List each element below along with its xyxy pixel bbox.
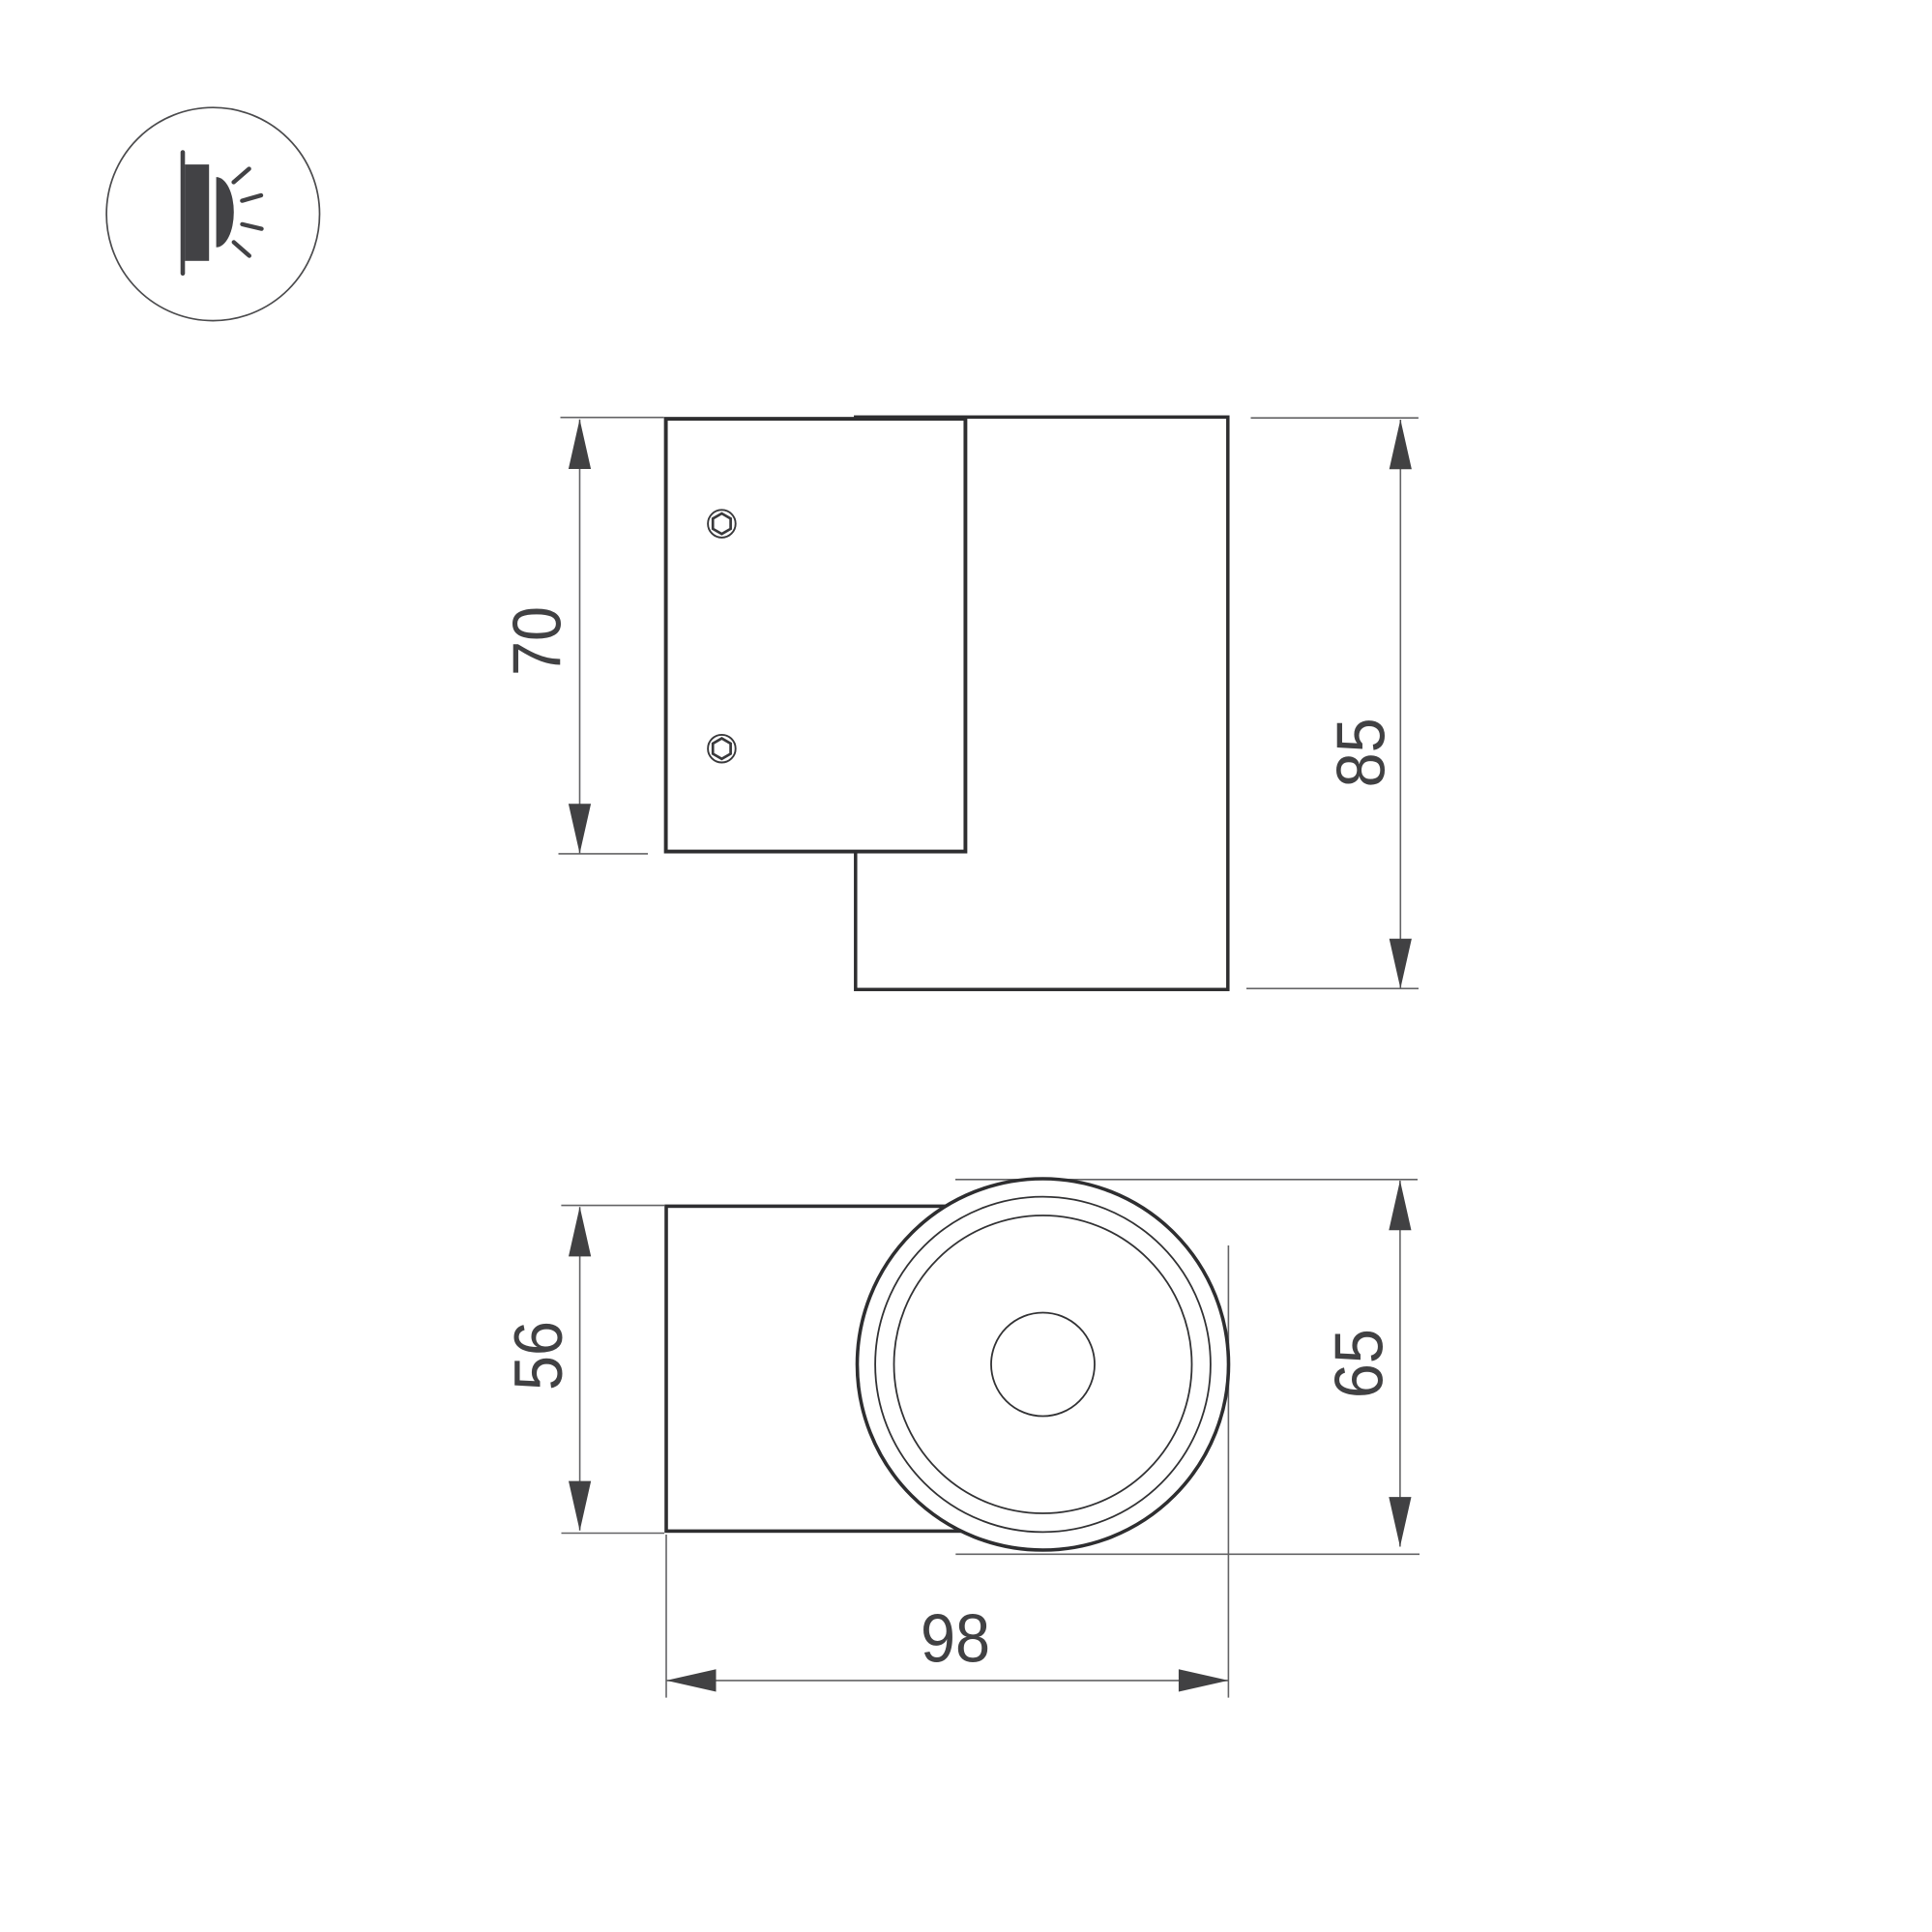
svg-text:70: 70 [498, 606, 574, 676]
svg-text:56: 56 [500, 1321, 576, 1390]
svg-text:85: 85 [1322, 717, 1398, 787]
svg-text:65: 65 [1321, 1329, 1397, 1398]
svg-text:98: 98 [921, 1599, 990, 1676]
